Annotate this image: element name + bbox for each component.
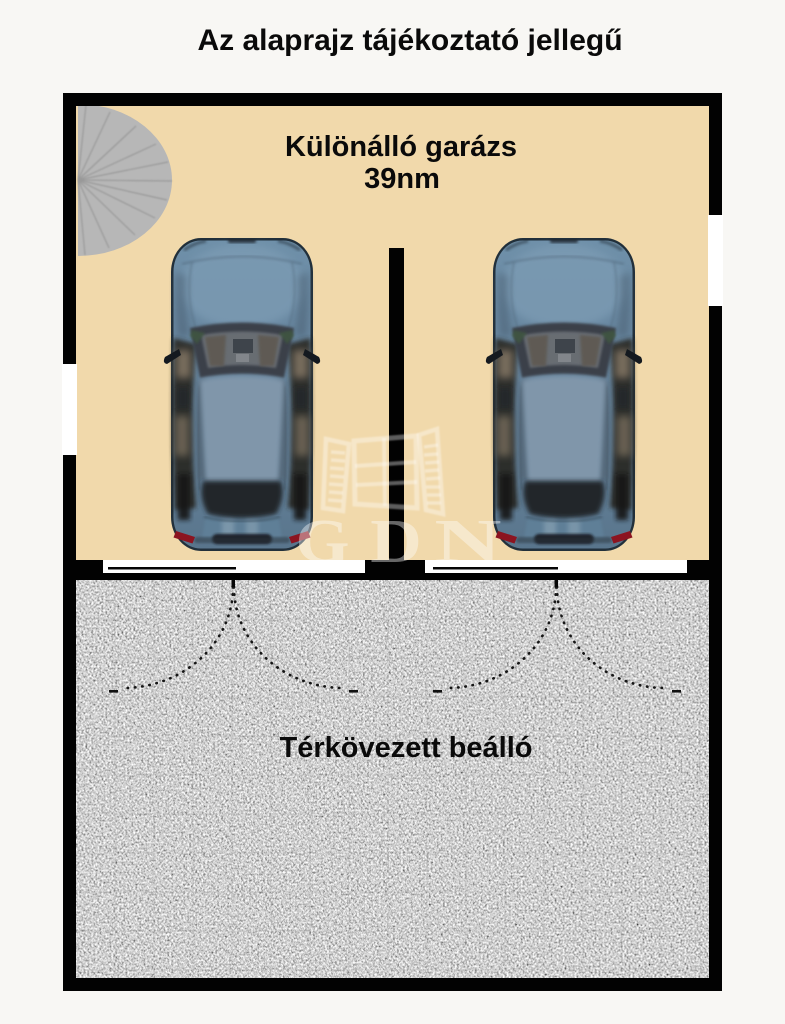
svg-text:Az alaprajz tájékoztató jelleg: Az alaprajz tájékoztató jellegű [197,24,622,57]
svg-text:Térkövezett beálló: Térkövezett beálló [279,732,532,764]
svg-text:D: D [370,507,421,576]
svg-text:39nm: 39nm [364,163,440,195]
svg-text:G: G [295,507,349,576]
svg-text:Különálló garázs: Különálló garázs [285,131,517,163]
svg-text:N: N [434,508,501,576]
